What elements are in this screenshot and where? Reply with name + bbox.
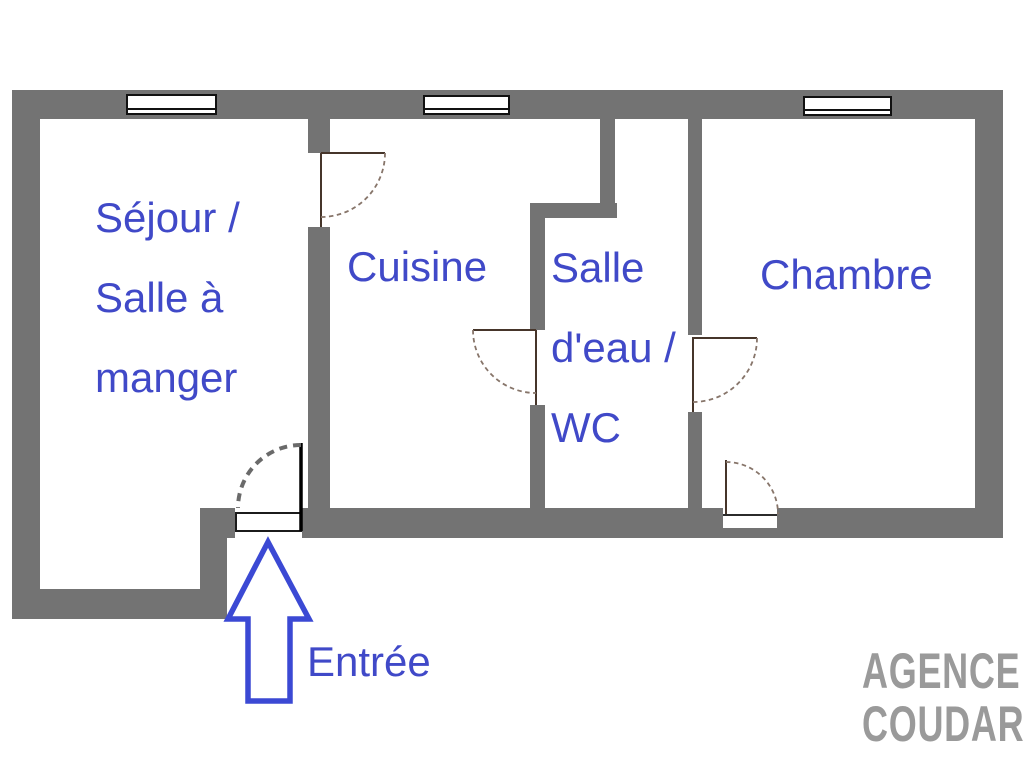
entrance-threshold [235, 512, 302, 532]
room-label-sejour-line3: manger [95, 338, 240, 418]
wall-left [12, 90, 40, 619]
wall-salledeau-left-upper [530, 203, 545, 330]
window-pane-line [424, 108, 509, 110]
door-chambre-bottom [726, 460, 778, 514]
window-pane-line [804, 109, 891, 111]
room-label-salledeau-line3: WC [551, 388, 676, 468]
window-pane-line [127, 108, 216, 110]
wall-sejour-cuisine-upper [308, 119, 330, 153]
room-label-sejour-line2: Salle à [95, 258, 240, 338]
entrance-arrow-icon [228, 542, 309, 701]
window-symbol-cuisine [423, 95, 510, 115]
room-label-salledeau: Salle d'eau / WC [551, 228, 676, 468]
chambre-exterior-door-opening [723, 508, 777, 528]
floor-plan: Séjour / Salle à manger Cuisine Salle d'… [0, 0, 1024, 768]
door-sejour-cuisine [321, 153, 385, 227]
wall-step [200, 508, 227, 619]
door-salledeau-chambre [693, 337, 757, 412]
window-symbol-sejour [126, 94, 217, 115]
door-cuisine-salledeau [473, 330, 536, 405]
room-label-cuisine: Cuisine [347, 246, 487, 288]
wall-salledeau-chambre-upper [688, 119, 702, 335]
room-label-chambre: Chambre [760, 254, 933, 296]
room-label-salledeau-line2: d'eau / [551, 308, 676, 388]
wall-sejour-cuisine-lower [308, 227, 330, 508]
watermark-line1: AGENCE [862, 646, 1020, 696]
wall-right [975, 90, 1003, 538]
room-label-sejour-line1: Séjour / [95, 178, 240, 258]
room-label-sejour: Séjour / Salle à manger [95, 178, 240, 418]
wall-salledeau-left-lower [530, 405, 545, 508]
wall-bottom-main [200, 508, 1003, 538]
room-label-salledeau-line1: Salle [551, 228, 676, 308]
entrance-label: Entrée [307, 641, 431, 683]
window-symbol-chambre [803, 96, 892, 116]
wall-salledeau-chambre-lower [688, 412, 702, 508]
chambre-door-threshold-line [723, 514, 777, 516]
wall-bottom-sejour [12, 589, 227, 619]
watermark-line2: COUDARI [862, 699, 1024, 749]
